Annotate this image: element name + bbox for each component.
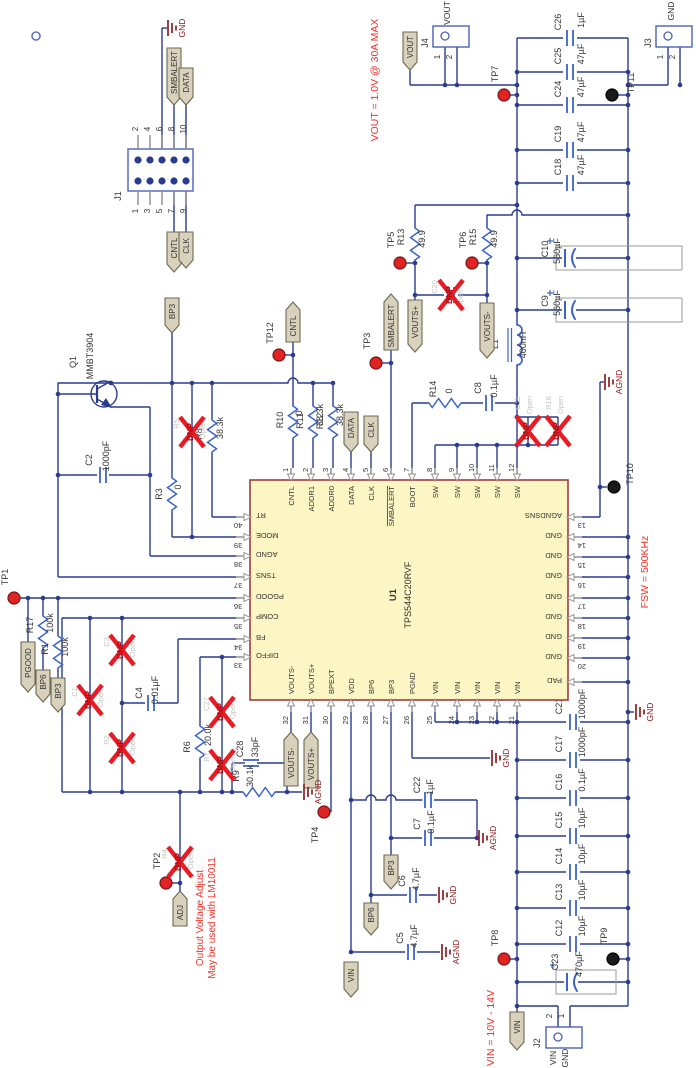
net-label-text: SMBALERT: [170, 51, 179, 94]
junction-dot: [626, 834, 631, 839]
j1-pin-number: 9: [179, 208, 188, 213]
value-C15: 10µF: [577, 807, 587, 828]
junction-dot: [515, 83, 520, 88]
testpoint-pad: [8, 592, 20, 604]
note-fsw: FSW = 500KHz: [639, 536, 651, 609]
connector-body: [128, 149, 193, 191]
connector-pin-number: 1: [433, 54, 442, 59]
value-C18: 47µF: [576, 154, 586, 175]
junction-dot: [626, 213, 631, 218]
net-label-text: VOUT: [406, 36, 415, 58]
junction-dot: [475, 443, 480, 448]
dnp-ref-C11: C11: [513, 396, 522, 409]
ref-C7: C7: [412, 818, 422, 830]
connector-pin-number: 2: [445, 54, 454, 59]
junction-dot: [626, 308, 631, 313]
junction-dot: [626, 616, 631, 621]
ref-C12: C12: [554, 920, 564, 937]
pin-name-4: DATA: [347, 486, 356, 505]
junction-dot: [26, 596, 31, 601]
ground-symbol-gnd: GND: [439, 886, 458, 905]
pin-number-18: 18: [578, 622, 586, 631]
junction-dot: [120, 701, 125, 706]
net-label-cntl: CNTL: [286, 302, 300, 342]
net-label-text: BP3: [387, 860, 396, 876]
net-label-clk: CLK: [364, 416, 378, 452]
junction-dot: [515, 758, 520, 763]
pin-number-13: 13: [578, 521, 586, 530]
junction-dot: [413, 293, 418, 298]
dnp-text: DNP: [215, 703, 225, 721]
ref-R13: R13: [396, 229, 406, 246]
net-label-vouts_minus: VOUTS-: [480, 303, 494, 358]
capacitor-curved-plate: [572, 301, 575, 319]
ref-C16: C16: [554, 774, 564, 791]
pin-name-22: VIN: [493, 681, 502, 694]
connector-pin: [146, 156, 153, 163]
pin-name-37: TSNS: [256, 571, 276, 580]
connector-pin: [182, 156, 189, 163]
testpoint-TP3: TP3: [362, 333, 382, 369]
pin-name-14: GND: [545, 531, 562, 540]
ground-label: AGND: [313, 780, 323, 805]
junction-dot: [485, 293, 490, 298]
testpoint-TP12: TP12: [265, 322, 285, 361]
dnp-note-R16: Open: [556, 396, 565, 414]
pin-number-17: 17: [578, 602, 586, 611]
pin-name-12: SW: [513, 485, 522, 498]
junction-dot: [626, 942, 631, 947]
dnp-ref-R2: R2: [102, 735, 111, 745]
pin-number-39: 39: [234, 541, 242, 550]
wire-path: [351, 795, 422, 800]
junction-dot: [515, 957, 520, 962]
pin-name-18: GND: [545, 612, 562, 621]
ref-C26: C26: [553, 14, 563, 31]
junction-dot: [369, 893, 374, 898]
junction-dot: [526, 443, 531, 448]
pin-number-34: 34: [234, 643, 242, 652]
connector-body: [546, 1027, 582, 1048]
pin-number-3: 3: [321, 468, 330, 472]
connector-pin: [170, 177, 177, 184]
pin-name-8: SW: [431, 485, 440, 498]
value-C10: 560µF: [552, 238, 562, 264]
junction-dot: [515, 834, 520, 839]
net-label-vin: VIN: [510, 1012, 524, 1050]
connector-net-label: GND: [666, 2, 676, 21]
testpoint-TP10: TP10: [608, 463, 635, 493]
testpoint-label: TP2: [152, 853, 162, 870]
connector-pin: [441, 32, 449, 40]
net-label-bp3: BP3: [165, 298, 179, 333]
junction-dot: [626, 710, 631, 715]
connector-ref: J2: [532, 1038, 542, 1048]
junction-dot: [598, 485, 603, 490]
pin-name-40: RT: [256, 511, 266, 520]
value-R15: 49.9: [489, 230, 499, 248]
note-vout: VOUT = 1.0V @ 30A MAX: [369, 19, 381, 142]
junction-dot: [220, 790, 225, 795]
ic-part-number: TPS544C20RVF: [403, 561, 413, 628]
ref-C18: C18: [553, 159, 563, 176]
pin-number-20: 20: [578, 662, 586, 671]
ref-C5: C5: [395, 932, 405, 944]
dnp-text: DNP: [115, 739, 125, 757]
pin-number-10: 10: [467, 464, 476, 472]
dnp-text: DNP: [83, 691, 93, 709]
connector-pin: [664, 32, 672, 40]
value-C14: 10µF: [577, 843, 587, 864]
ground-label: GND: [448, 886, 458, 905]
j2-pin-label: VIN: [548, 1051, 558, 1065]
capacitor-curved-plate: [572, 249, 575, 267]
pin-name-24: VIN: [453, 681, 462, 694]
ref-R3: R3: [154, 488, 164, 500]
net-label-data: DATA: [179, 68, 193, 105]
ref-C13: C13: [554, 884, 564, 901]
junction-dot: [626, 256, 631, 261]
j1-pin-number: 2: [131, 126, 140, 131]
dnp-ref-R7: R7: [202, 752, 211, 762]
net-label-pgood: PGOOD: [21, 642, 35, 692]
net-label-text: DATA: [347, 417, 356, 438]
pin-name-6: SMBALERT: [387, 486, 396, 527]
pin-name-15: GND: [545, 551, 562, 560]
dnp-text: DNP: [173, 853, 183, 871]
value-R14: 0: [444, 388, 454, 393]
junction-dot: [626, 555, 631, 560]
value-C7: 0.1µF: [426, 810, 436, 834]
pin-number-8: 8: [425, 468, 434, 472]
pin-name-39: MODE: [256, 531, 279, 540]
connector-pin: [554, 1033, 562, 1041]
ground-symbol-gnd: GND: [168, 19, 187, 38]
ref-R17: R17: [25, 617, 35, 634]
junction-dot: [170, 381, 175, 386]
junction-dot: [389, 361, 394, 366]
pin-name-35: COMP: [256, 612, 279, 621]
j1-pin-number: 4: [143, 126, 152, 131]
testpoint-TP8: TP8: [490, 930, 510, 965]
value-C6: 4.7µF: [411, 867, 421, 891]
resistor-symbol: [429, 399, 461, 408]
pin-number-40: 40: [234, 521, 242, 530]
pin-name-pad: PAD: [547, 676, 562, 685]
value-R9: 30.1k: [245, 764, 255, 787]
junction-dot: [515, 1004, 520, 1009]
testpoint-TP11: TP11: [606, 73, 636, 101]
dnp-text: DNP: [444, 286, 454, 304]
ref-C24: C24: [553, 81, 563, 98]
pin-name-17: GND: [545, 592, 562, 601]
pin-number-16: 16: [578, 581, 586, 590]
dnp-text: DNP: [521, 422, 531, 440]
ground-symbol-agnd: AGND: [442, 940, 461, 965]
pin-name-23: VIN: [473, 681, 482, 694]
pin-number-36: 36: [234, 602, 242, 611]
connector-pin: [134, 156, 141, 163]
testpoint-label: TP8: [490, 930, 500, 947]
testpoint-TP1: TP1: [0, 569, 20, 604]
testpoint-pad: [607, 953, 619, 965]
pin-number-22: 22: [487, 716, 496, 724]
ground-label: GND: [501, 749, 511, 768]
pin-name-25: VIN: [431, 681, 440, 694]
ref-C23: C23: [550, 954, 560, 971]
junction-dot: [413, 261, 418, 266]
pin-number-7: 7: [402, 468, 411, 472]
dnp-text: DNP: [551, 422, 561, 440]
junction-dot: [515, 148, 520, 153]
value-C21: 1000pF: [577, 688, 587, 719]
ref-C9: C9: [540, 295, 550, 307]
testpoint-label: TP7: [490, 66, 500, 83]
value-C8: 0.1µF: [489, 374, 499, 398]
dnp-ref-C1: C1: [70, 687, 79, 697]
junction-dot: [515, 906, 520, 911]
value-C16: 0.1µF: [577, 768, 587, 792]
ref-C4: C4: [134, 687, 144, 699]
ic-ref: U1: [388, 588, 399, 601]
net-label-text: VIN: [513, 1020, 522, 1034]
pin-name-3: ADDR0: [327, 486, 336, 511]
junction-dot: [626, 148, 631, 153]
ref-R6: R6: [182, 741, 192, 753]
net-label-bp6: BP6: [364, 903, 378, 935]
net-label-vouts_minus: VOUTS-: [284, 732, 298, 786]
ref-Q1: Q1: [68, 356, 78, 368]
testpoint-pad: [273, 349, 285, 361]
value-R3: 0: [173, 484, 183, 489]
testpoint-label: TP1: [0, 569, 10, 586]
junction-dot: [626, 535, 631, 540]
pin-number-2: 2: [301, 468, 310, 472]
net-label-text: CLK: [182, 238, 191, 254]
testpoint-TP4: TP4: [310, 806, 330, 843]
net-label-smbalert: SMBALERT: [384, 294, 398, 350]
connector-pin: [134, 177, 141, 184]
value-R8: 38.3k: [215, 416, 225, 439]
pin-number-26: 26: [402, 716, 411, 724]
connector-body: [433, 26, 469, 47]
ref-C25: C25: [553, 48, 563, 65]
ref-R10: R10: [275, 412, 285, 429]
testpoint-pad: [498, 89, 510, 101]
ground-label: AGND: [614, 370, 624, 395]
net-label-text: CLK: [367, 422, 376, 438]
testpoint-label: TP6: [458, 232, 468, 249]
pin-number-12: 12: [507, 464, 516, 472]
pin-number-33: 33: [234, 661, 242, 670]
net-label-bp3: BP3: [384, 855, 398, 889]
net-label-vouts_plus: VOUTS+: [304, 732, 318, 788]
ground-label: GND: [645, 703, 655, 722]
junction-dot: [626, 656, 631, 661]
value-C24: 47µF: [576, 76, 586, 97]
junction-dot: [515, 942, 520, 947]
junction-dot: [220, 655, 225, 660]
junction-dot: [56, 473, 61, 478]
net-label-vouts_plus: VOUTS+: [408, 300, 422, 352]
pin-name-21: VIN: [513, 681, 522, 694]
value-C5: 4.7µF: [409, 924, 419, 948]
value-C2: 1000pF: [101, 440, 111, 471]
value-C23: 470µF: [574, 951, 584, 977]
connector-ref: J1: [113, 191, 123, 201]
pin-number-23: 23: [467, 716, 476, 724]
ref-C14: C14: [554, 848, 564, 865]
junction-dot: [210, 381, 215, 386]
ref-C17: C17: [554, 736, 564, 753]
net-label-text: BP3: [168, 303, 177, 319]
pin-name-5: CLK: [367, 486, 376, 501]
connector-pin: [158, 156, 165, 163]
junction-dot: [626, 103, 631, 108]
pin-number-15: 15: [578, 561, 586, 570]
junction-dot: [120, 616, 125, 621]
j1-pin-number: 7: [167, 208, 176, 213]
net-label-clk: CLK: [179, 232, 193, 268]
testpoint-label: TP12: [265, 322, 275, 344]
pin-name-11: SW: [493, 485, 502, 498]
schematic-canvas: Q1MMBT3904C21000pFR30R838.3kR100R1138.3k…: [0, 0, 696, 1068]
j1-pin-number: 3: [143, 208, 152, 213]
ground-label: AGND: [488, 826, 498, 851]
junction-dot: [56, 596, 61, 601]
pin-number-5: 5: [361, 468, 370, 472]
resistor-symbol: [243, 788, 275, 797]
junction-dot: [495, 443, 500, 448]
pin-name-20: GND: [545, 652, 562, 661]
testpoint-pad: [160, 877, 172, 889]
testpoint-pad: [370, 357, 382, 369]
net-label-vout: VOUT: [403, 32, 417, 70]
pin-number-14: 14: [578, 541, 586, 550]
j1-pin-number: 1: [131, 208, 140, 213]
dnp-text: DNP: [185, 423, 195, 441]
dnp-ref-C3: C3: [102, 637, 111, 647]
junction-dot: [515, 980, 520, 985]
j1-pin-number: 8: [167, 126, 176, 131]
junction-dot: [626, 575, 631, 580]
ground-label: AGND: [451, 940, 461, 965]
pin-name-13: AGNDSNS: [525, 511, 562, 520]
ref-C10: C10: [540, 241, 550, 258]
junction-dot: [198, 790, 203, 795]
j1-pin-number: 6: [155, 126, 164, 131]
connector-J1: 21436587109J1: [113, 124, 193, 213]
testpoint-label: TP10: [625, 463, 635, 485]
junction-dot: [515, 181, 520, 186]
net-label-text: CNTL: [289, 315, 298, 336]
schematic-page: Q1MMBT3904C21000pFR30R838.3kR100R1138.3k…: [0, 0, 696, 1068]
dnp-ref-R16: R16: [544, 396, 553, 410]
junction-dot: [626, 980, 631, 985]
ground-symbol-gnd: GND: [492, 749, 511, 768]
value-C25: 47µF: [576, 43, 586, 64]
net-label-adj: ADJ: [173, 891, 187, 926]
net-label-text: SMBALERT: [387, 304, 396, 347]
junction-dot: [485, 261, 490, 266]
pin-number-31: 31: [301, 716, 310, 724]
connector-pin-number: 2: [668, 54, 677, 59]
junction-dot: [626, 870, 631, 875]
testpoint-pad: [394, 257, 406, 269]
connector-net-label: VOUT: [442, 1, 452, 25]
pin-name-30: BPEXT: [327, 669, 336, 694]
testpoint-label: TP4: [310, 827, 320, 844]
pin-name-26: PGND: [408, 672, 417, 694]
junction-dot: [230, 790, 235, 795]
pin-name-28: BP6: [367, 680, 376, 694]
wire-path: [487, 210, 628, 215]
ref-C19: C19: [553, 126, 563, 143]
junction-dot: [190, 535, 195, 540]
ref-C8: C8: [473, 382, 483, 394]
net-label-text: BP6: [39, 674, 48, 690]
pin-number-38: 38: [234, 560, 242, 569]
net-label-text: ADJ: [176, 905, 185, 920]
dnp-ref-R5: R5: [172, 419, 181, 429]
net-label-text: VOUTS-: [483, 311, 492, 342]
junction-dot: [515, 308, 520, 313]
connector-J2: J221VINGND: [532, 1013, 696, 1067]
testpoint-pad: [498, 953, 510, 965]
junction-dot: [515, 796, 520, 801]
junction-dot: [515, 93, 520, 98]
junction-dot: [515, 203, 520, 208]
connector-pin: [146, 177, 153, 184]
connector-pin: [182, 177, 189, 184]
value-Q1: MMBT3904: [85, 333, 95, 380]
net-label-vin: VIN: [344, 962, 358, 997]
net-label-text: BP3: [54, 683, 63, 699]
value-C4: 0.01µF: [150, 675, 160, 704]
junction-dot: [515, 103, 520, 108]
net-label-bp3: BP3: [51, 678, 65, 712]
value-C9: 560µF: [552, 290, 562, 316]
testpoint-TP9: TP9: [599, 928, 619, 965]
pin-number-9: 9: [447, 468, 456, 472]
junction-dot: [41, 596, 46, 601]
net-label-data: DATA: [344, 412, 358, 452]
junction-dot: [148, 473, 153, 478]
connector-pin: [32, 32, 40, 40]
testpoint-pad: [608, 481, 620, 493]
net-label-text: VOUTS+: [411, 306, 420, 339]
note-adjust-1: Output Voltage Adjust: [195, 870, 206, 966]
junction-dot: [190, 381, 195, 386]
net-label-text: CNTL: [170, 237, 179, 258]
net-label-text: VOUTS+: [307, 748, 316, 781]
junction-dot: [178, 790, 183, 795]
junction-dot: [349, 950, 354, 955]
pin-name-34: FB: [256, 633, 266, 642]
junction-dot: [291, 353, 296, 358]
ref-C22: C22: [412, 777, 422, 794]
ground-symbol-gnd: GND: [636, 703, 655, 722]
testpoint-label: TP9: [599, 928, 609, 945]
value-R1: 100k: [60, 637, 70, 657]
ref-C15: C15: [554, 812, 564, 829]
testpoint-pad: [606, 89, 618, 101]
value-C13: 10µF: [577, 879, 587, 900]
junction-dot: [349, 798, 354, 803]
pin-name-33: DIFFO: [256, 651, 279, 660]
testpoint-label: TP3: [362, 333, 372, 350]
pin-number-25: 25: [425, 716, 434, 724]
